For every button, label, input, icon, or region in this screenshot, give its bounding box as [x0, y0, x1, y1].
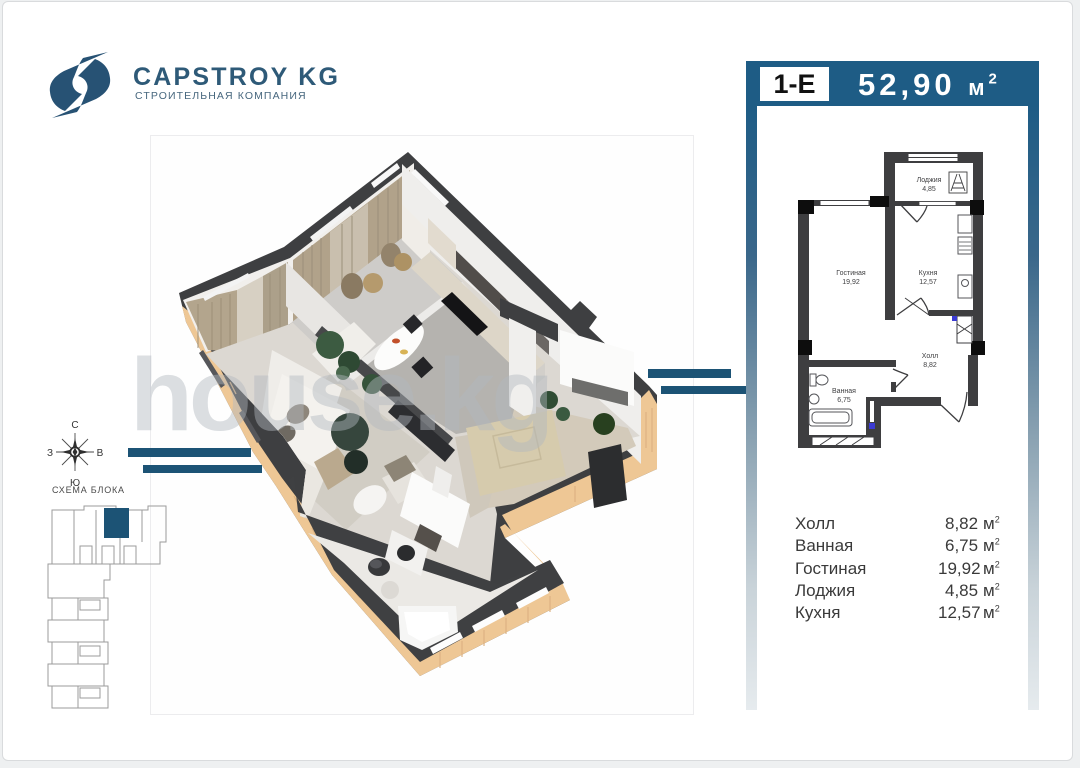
- svg-text:4,85: 4,85: [922, 186, 936, 193]
- svg-text:6,75: 6,75: [837, 397, 851, 404]
- svg-text:В: В: [97, 448, 104, 459]
- svg-text:Кухня: Кухня: [919, 270, 938, 277]
- svg-text:З: З: [47, 448, 53, 459]
- svg-text:Холл: Холл: [922, 353, 939, 360]
- svg-text:Ванная: Ванная: [832, 388, 856, 395]
- svg-text:8,82: 8,82: [923, 362, 937, 369]
- svg-text:Гостиная: Гостиная: [836, 270, 866, 277]
- svg-text:Лоджия: Лоджия: [917, 177, 942, 184]
- svg-text:12,57: 12,57: [919, 279, 937, 286]
- svg-text:С: С: [71, 420, 78, 431]
- svg-text:19,92: 19,92: [842, 279, 860, 286]
